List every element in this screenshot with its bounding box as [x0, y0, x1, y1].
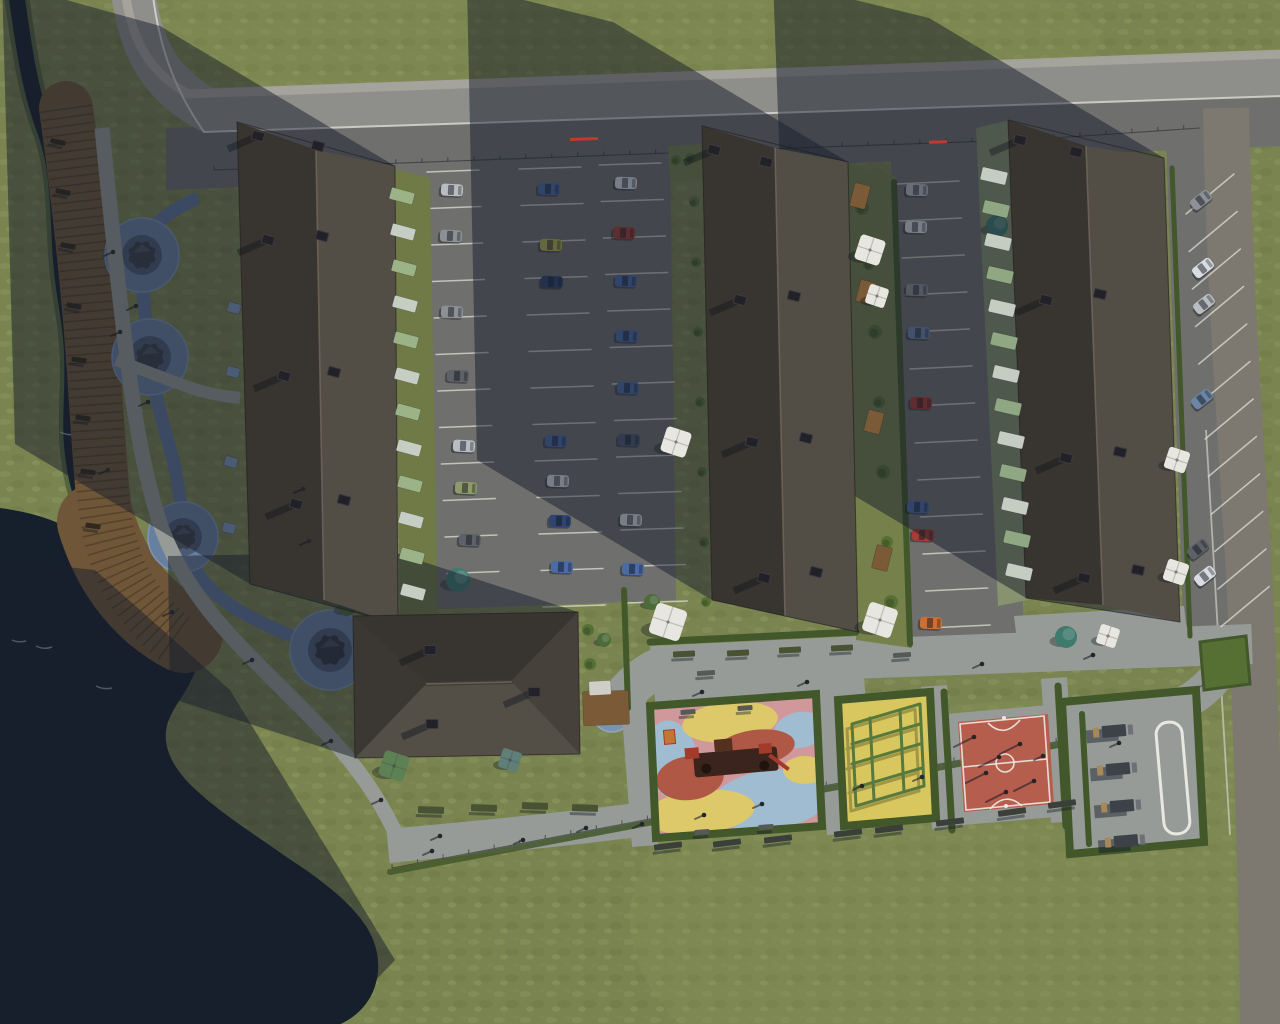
- site-plan-canvas: [0, 0, 1280, 1024]
- residential-building-2: [702, 126, 858, 632]
- corner-hedge-block: [1200, 636, 1250, 690]
- info-board: [663, 730, 675, 745]
- aerial-masterplan-view: [0, 0, 1280, 1024]
- workout-area: [830, 685, 942, 833]
- kindergarten-building: [353, 612, 580, 758]
- residential-building-1: [237, 122, 398, 624]
- kids-playground: [639, 685, 835, 845]
- residential-building-3: [1008, 120, 1180, 622]
